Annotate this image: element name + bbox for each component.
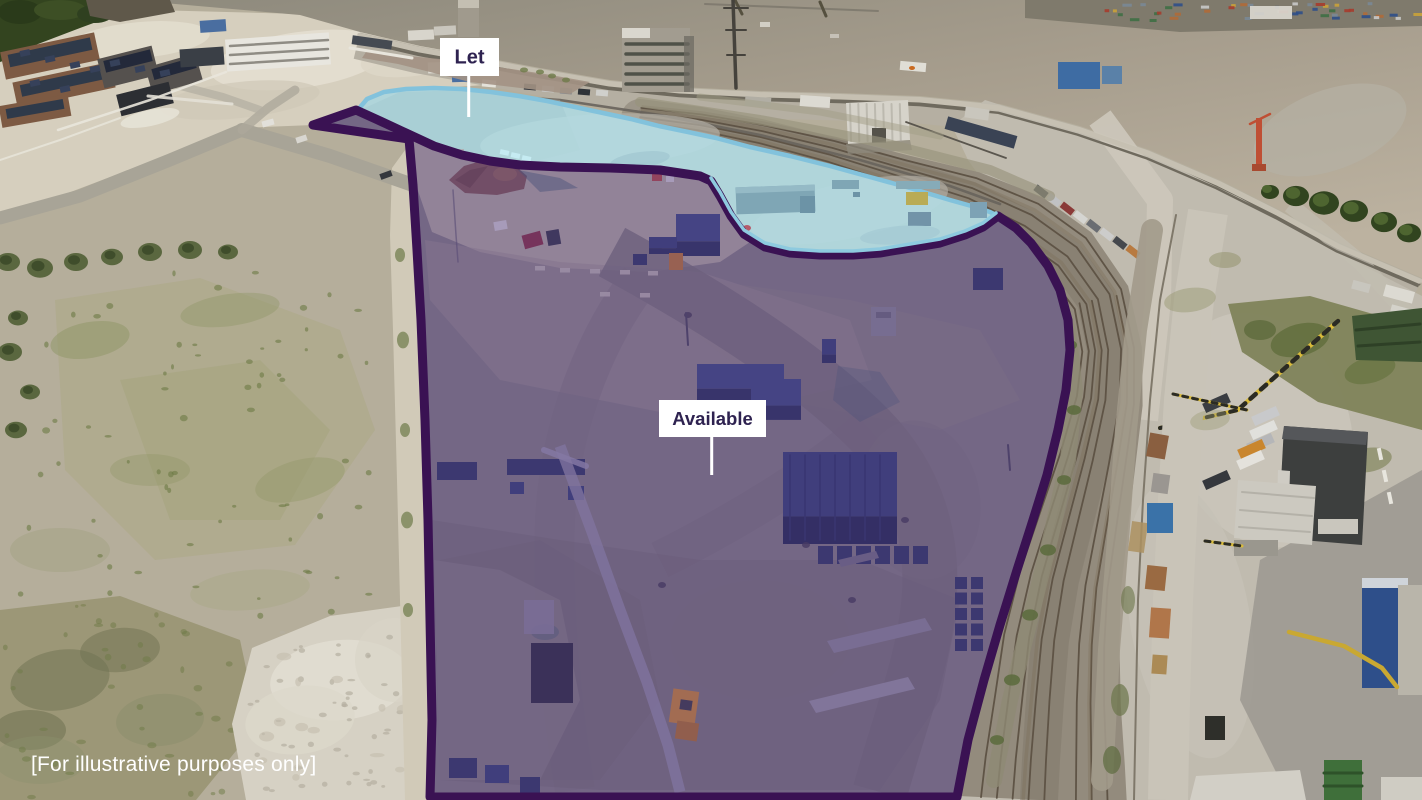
svg-text:[For illustrative purposes onl: [For illustrative purposes only] — [31, 753, 316, 776]
svg-text:Available: Available — [672, 408, 753, 429]
svg-text:Let: Let — [455, 47, 485, 69]
